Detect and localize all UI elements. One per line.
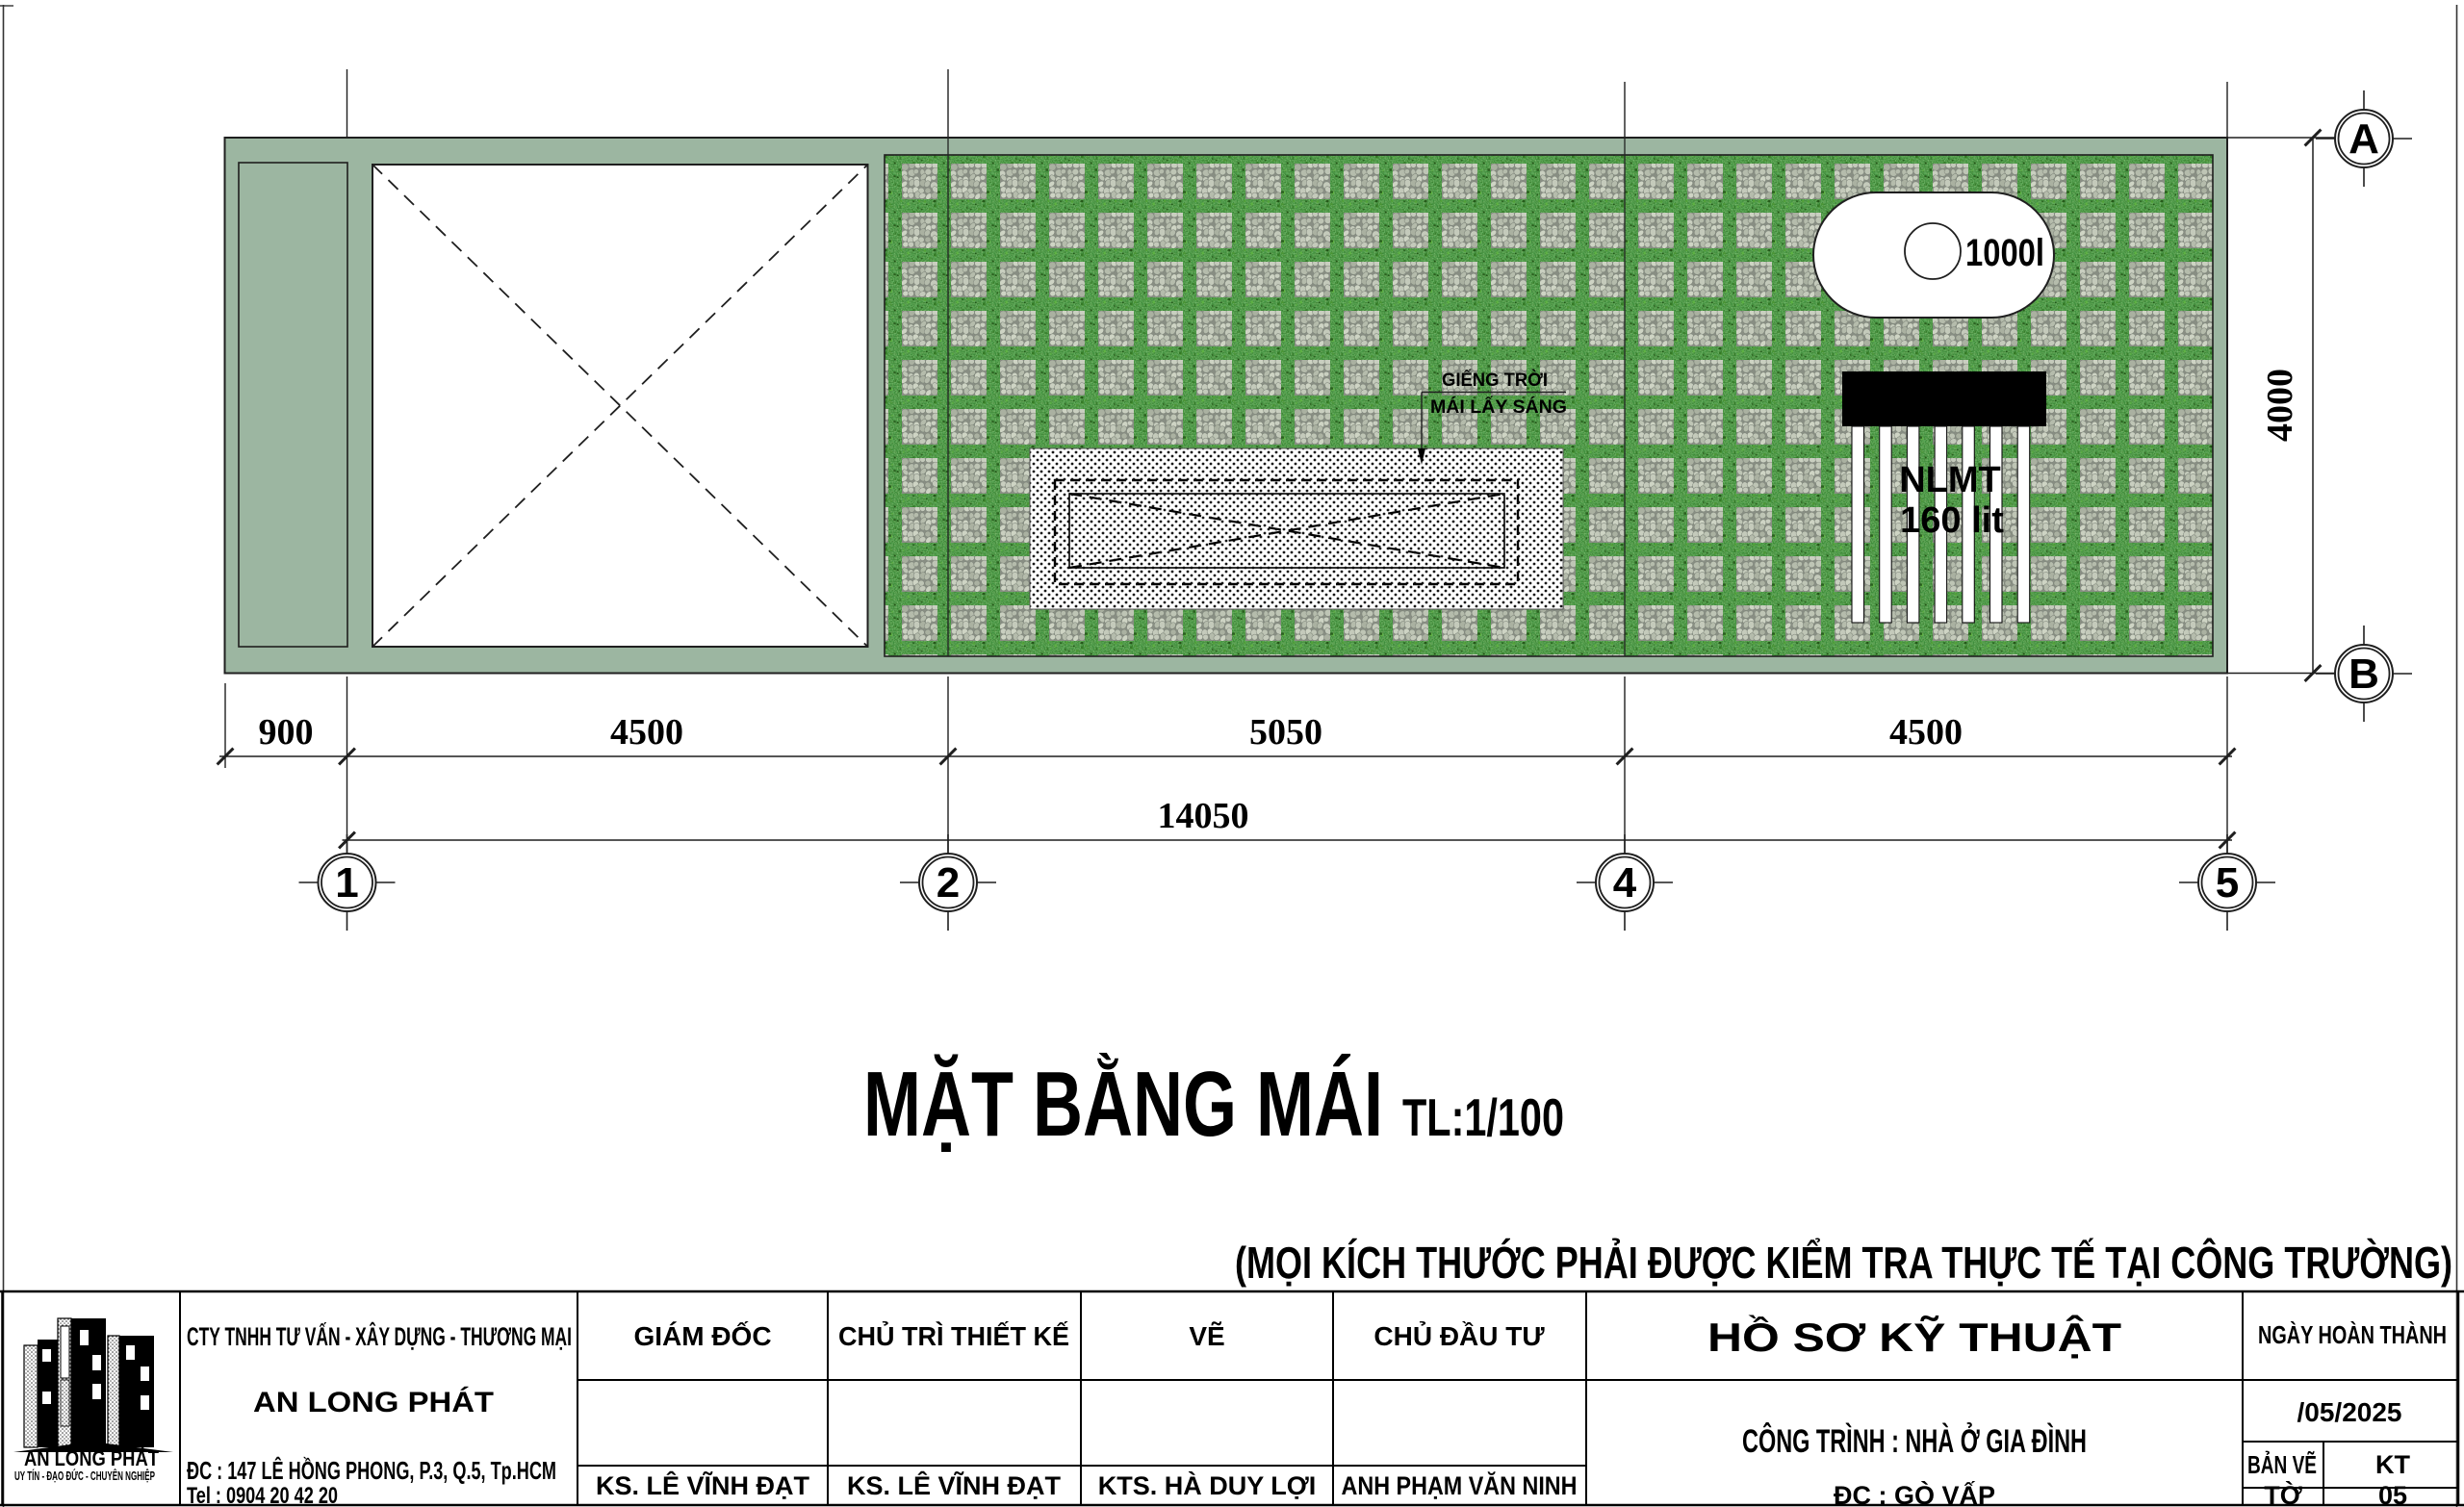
- svg-text:CTY TNHH TƯ VẤN - XÂY DỰNG - T: CTY TNHH TƯ VẤN - XÂY DỰNG - THƯƠNG MẠI: [187, 1321, 572, 1351]
- svg-text:4000: 4000: [2260, 369, 2300, 442]
- svg-text:(MỌI KÍCH THƯỚC PHẢI ĐƯỢC KIỂM: (MỌI KÍCH THƯỚC PHẢI ĐƯỢC KIỂM TRA THỰC …: [1235, 1238, 2452, 1288]
- svg-text:05: 05: [2378, 1481, 2407, 1507]
- svg-text:CHỦ TRÌ THIẾT KẾ: CHỦ TRÌ THIẾT KẾ: [838, 1320, 1069, 1351]
- svg-text:4: 4: [1613, 859, 1637, 907]
- svg-text:Tel : 0904 20 42 20: Tel : 0904 20 42 20: [187, 1483, 338, 1507]
- svg-text:GIÁM ĐỐC: GIÁM ĐỐC: [633, 1320, 771, 1351]
- svg-text:160 lit: 160 lit: [1900, 500, 2004, 541]
- svg-text:KS. LÊ VĨNH ĐẠT: KS. LÊ VĨNH ĐẠT: [847, 1470, 1062, 1500]
- svg-text:4500: 4500: [1889, 712, 1963, 753]
- svg-text:NGÀY HOÀN THÀNH: NGÀY HOÀN THÀNH: [2258, 1320, 2447, 1349]
- svg-text:KS. LÊ VĨNH ĐẠT: KS. LÊ VĨNH ĐẠT: [596, 1470, 810, 1500]
- svg-text:VẼ: VẼ: [1189, 1321, 1224, 1351]
- svg-text:GIẾNG TRỜI: GIẾNG TRỜI: [1442, 370, 1548, 391]
- svg-text:1000l: 1000l: [1965, 232, 2044, 274]
- svg-text:ANH PHẠM VĂN NINH: ANH PHẠM VĂN NINH: [1342, 1470, 1578, 1500]
- svg-text:CHỦ ĐẦU TƯ: CHỦ ĐẦU TƯ: [1373, 1320, 1545, 1351]
- svg-text:5: 5: [2216, 859, 2239, 907]
- svg-text:1: 1: [335, 859, 358, 907]
- svg-text:TL:1/100: TL:1/100: [1402, 1087, 1564, 1147]
- svg-text:ĐC : GÒ VẤP: ĐC : GÒ VẤP: [1834, 1480, 1995, 1507]
- svg-text:B: B: [2348, 651, 2379, 698]
- svg-text:KTS. HÀ DUY LỢI: KTS. HÀ DUY LỢI: [1098, 1470, 1317, 1500]
- svg-text:TỜ: TỜ: [2264, 1480, 2302, 1507]
- svg-text:MÁI LẤY SÁNG: MÁI LẤY SÁNG: [1430, 396, 1567, 418]
- svg-text:HỒ SƠ KỸ THUẬT: HỒ SƠ KỸ THUẬT: [1707, 1314, 2121, 1360]
- svg-text:AN LONG PHÁT: AN LONG PHÁT: [253, 1386, 494, 1418]
- svg-text:BẢN VẼ: BẢN VẼ: [2247, 1450, 2317, 1479]
- svg-text:A: A: [2348, 115, 2379, 163]
- svg-text:UY TÍN - ĐẠO ĐỨC - CHUYÊN NGHI: UY TÍN - ĐẠO ĐỨC - CHUYÊN NGHIỆP: [14, 1469, 155, 1483]
- svg-text:KT: KT: [2375, 1450, 2410, 1479]
- svg-text:MẶT BẰNG MÁI: MẶT BẰNG MÁI: [863, 1052, 1383, 1156]
- svg-text:NLMT: NLMT: [1899, 460, 2001, 500]
- svg-text:AN LONG PHÁT: AN LONG PHÁT: [24, 1446, 159, 1470]
- svg-text:4500: 4500: [610, 712, 683, 753]
- svg-text:900: 900: [259, 712, 314, 753]
- svg-text:/05/2025: /05/2025: [2297, 1397, 2402, 1427]
- svg-text:14050: 14050: [1158, 796, 1249, 836]
- svg-text:2: 2: [937, 859, 960, 907]
- svg-text:5050: 5050: [1249, 712, 1322, 753]
- svg-text:CÔNG TRÌNH : NHÀ Ở GIA ĐÌNH: CÔNG TRÌNH : NHÀ Ở GIA ĐÌNH: [1742, 1422, 2087, 1460]
- svg-text:ĐC : 147 LÊ HỒNG PHONG, P.3, Q: ĐC : 147 LÊ HỒNG PHONG, P.3, Q.5, Tp.HCM: [187, 1456, 556, 1485]
